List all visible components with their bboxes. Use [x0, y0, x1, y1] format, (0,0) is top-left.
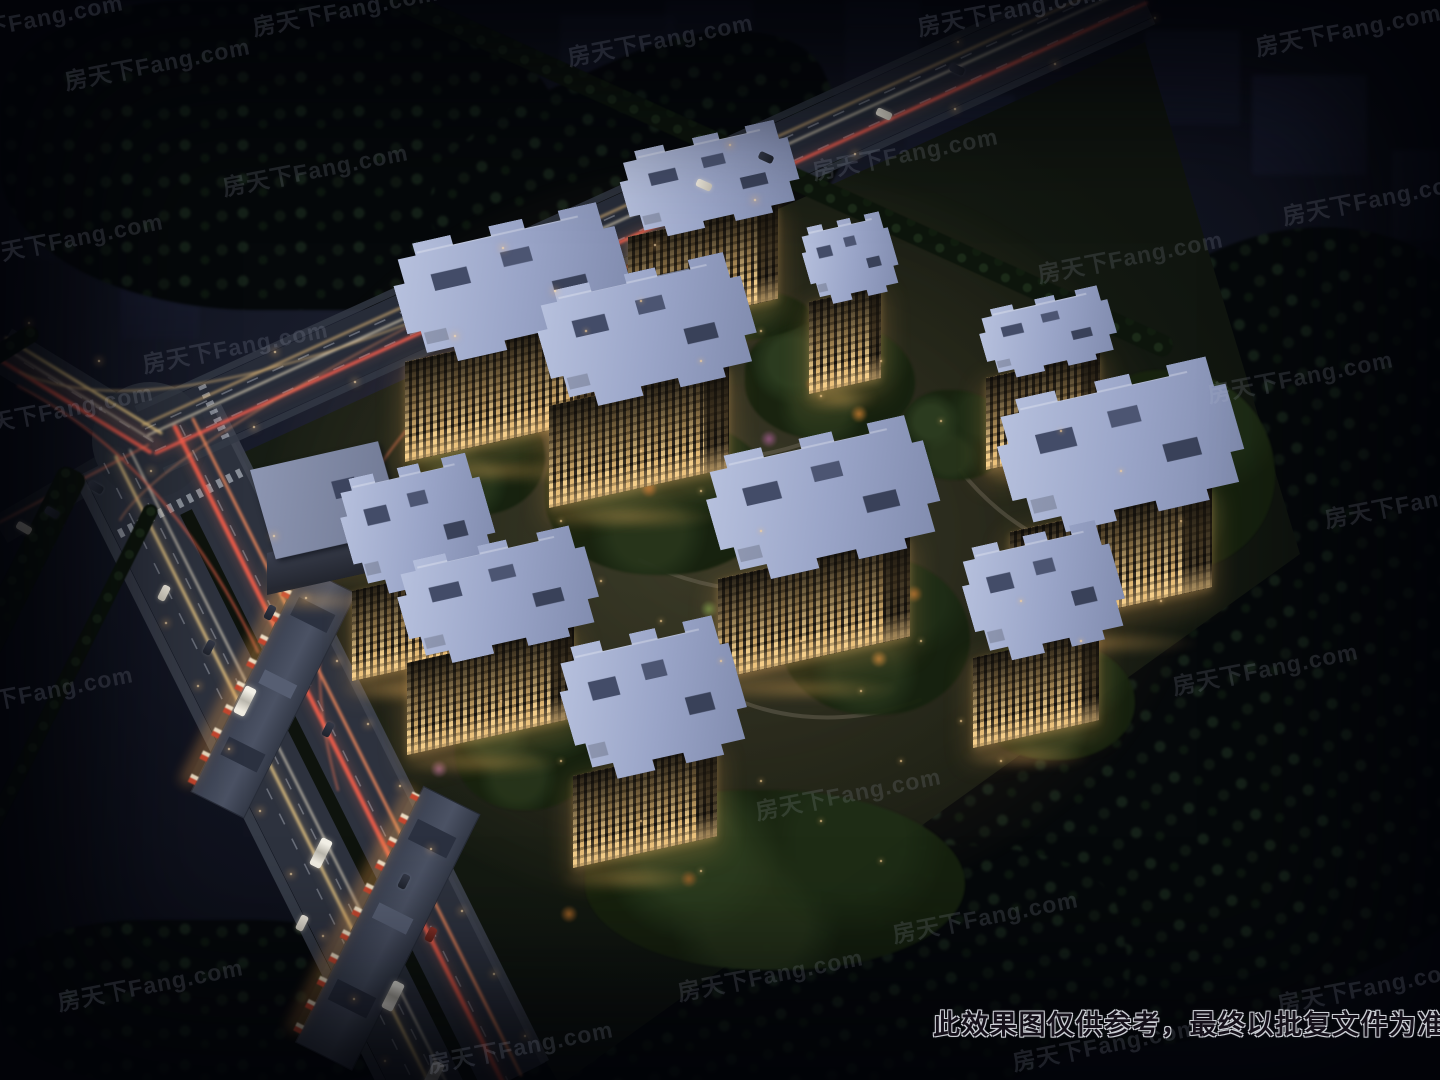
watermark-text: 房天下Fang.com: [139, 310, 331, 379]
watermark-text: 房天下Fang.com: [1321, 465, 1440, 534]
watermark-text: 房天下Fang.com: [219, 133, 411, 202]
watermark-text: 房天下Fang.com: [0, 655, 136, 724]
watermark-text: 房天下Fang.com: [0, 0, 126, 53]
watermark-text: 房天下Fang.com: [809, 117, 1001, 186]
watermark-text: 房天下Fang.com: [752, 757, 944, 826]
watermark-text: 房天下Fang.com: [914, 0, 1106, 43]
watermark-text: 房天下Fang.com: [424, 1010, 616, 1079]
watermark-text: 房天下Fang.com: [1169, 632, 1361, 701]
watermark-text: 房天下Fang.com: [1204, 340, 1396, 409]
watermark-text: 房天下Fang.com: [564, 3, 756, 72]
watermark-layer: 房天下Fang.com房天下Fang.com房天下Fang.com房天下Fang…: [0, 0, 1440, 1080]
watermark-text: 房天下Fang.com: [0, 373, 156, 442]
watermark-text: 房天下Fang.com: [1252, 0, 1440, 63]
watermark-text: 房天下Fang.com: [54, 948, 246, 1017]
watermark-text: 房天下Fang.com: [889, 880, 1081, 949]
watermark-text: 房天下Fang.com: [61, 27, 253, 96]
watermark-text: 房天下Fang.com: [1279, 162, 1440, 231]
watermark-text: 房天下Fang.com: [674, 938, 866, 1007]
watermark-text: 房天下Fang.com: [0, 202, 166, 271]
watermark-text: 房天下Fang.com: [1034, 220, 1226, 289]
night-aerial-rendering: 房天下Fang.com房天下Fang.com房天下Fang.com房天下Fang…: [0, 0, 1440, 1080]
disclaimer-text: 此效果图仅供参考，最终以批复文件为准。: [933, 1003, 1440, 1042]
watermark-text: 房天下Fang.com: [249, 0, 441, 43]
